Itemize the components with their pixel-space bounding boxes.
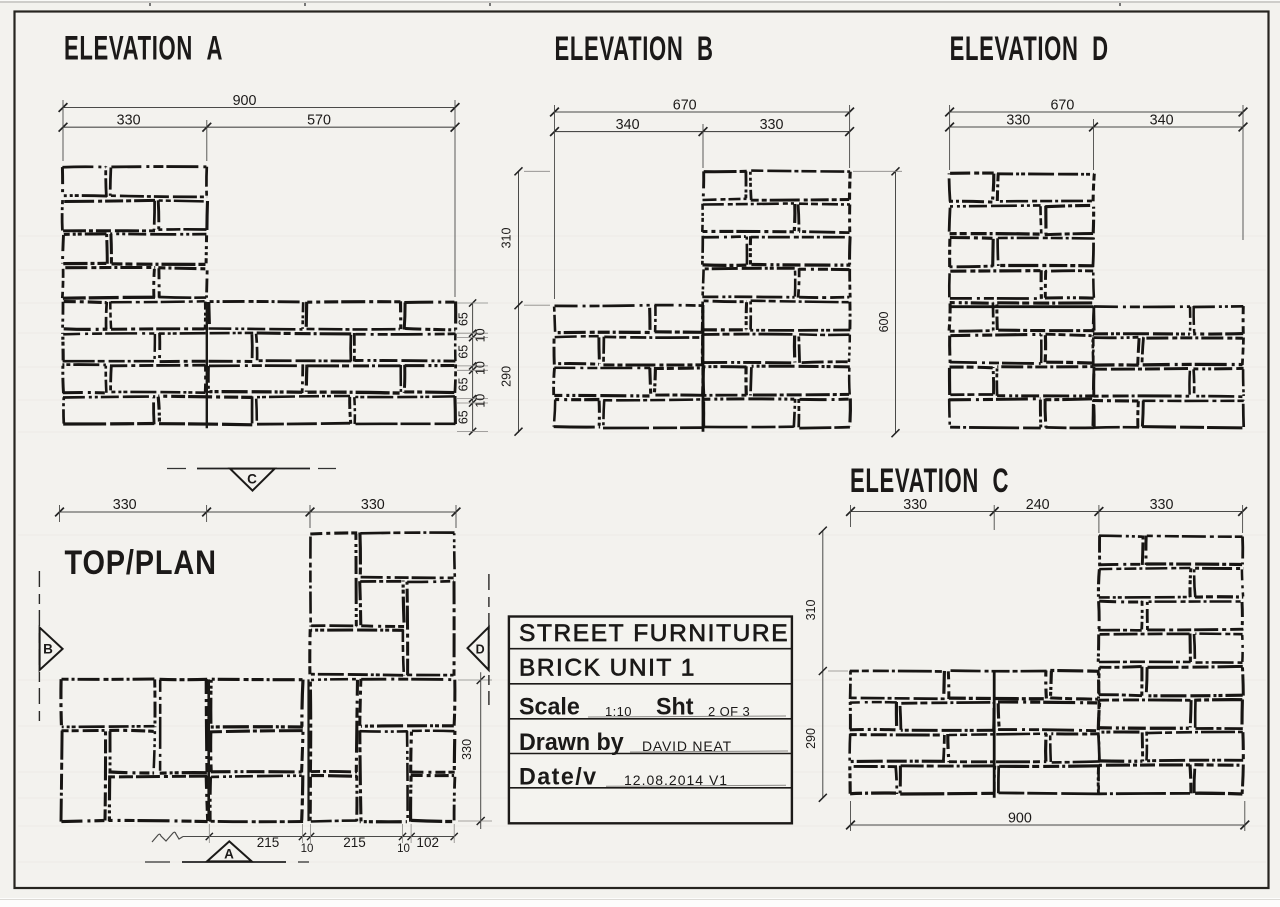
svg-text:240: 240 bbox=[1026, 497, 1050, 513]
svg-text:330: 330 bbox=[117, 113, 141, 129]
svg-text:65: 65 bbox=[457, 345, 471, 359]
svg-text:670: 670 bbox=[1050, 98, 1074, 114]
svg-text:Date/v: Date/v bbox=[519, 764, 598, 790]
svg-text:10: 10 bbox=[474, 394, 488, 408]
svg-text:600: 600 bbox=[877, 312, 891, 333]
svg-text:C: C bbox=[247, 472, 257, 487]
svg-text:290: 290 bbox=[500, 366, 514, 387]
svg-text:ELEVATION C: ELEVATION C bbox=[850, 462, 1009, 500]
svg-text:570: 570 bbox=[307, 113, 331, 129]
svg-text:10: 10 bbox=[397, 843, 410, 855]
svg-text:102: 102 bbox=[416, 835, 439, 850]
svg-text:STREET FURNITURE: STREET FURNITURE bbox=[519, 620, 789, 647]
svg-text:340: 340 bbox=[1150, 113, 1174, 129]
svg-text:10: 10 bbox=[474, 328, 488, 342]
svg-text:Scale: Scale bbox=[519, 694, 580, 720]
svg-text:10: 10 bbox=[474, 361, 488, 375]
svg-text:330: 330 bbox=[460, 739, 474, 760]
svg-text:330: 330 bbox=[1006, 113, 1030, 129]
svg-text:215: 215 bbox=[257, 835, 280, 850]
svg-text:330: 330 bbox=[903, 497, 927, 513]
svg-text:65: 65 bbox=[457, 312, 471, 326]
svg-text:900: 900 bbox=[233, 93, 257, 109]
svg-text:ELEVATION B: ELEVATION B bbox=[555, 30, 714, 68]
svg-text:330: 330 bbox=[760, 117, 784, 133]
svg-text:ELEVATION D: ELEVATION D bbox=[950, 30, 1109, 68]
svg-text:TOP/PLAN: TOP/PLAN bbox=[65, 543, 217, 582]
svg-text:B: B bbox=[43, 642, 53, 657]
svg-text:340: 340 bbox=[616, 117, 640, 133]
svg-text:ELEVATION A: ELEVATION A bbox=[64, 30, 223, 68]
svg-text:330: 330 bbox=[361, 497, 385, 513]
svg-text:BRICK UNIT 1: BRICK UNIT 1 bbox=[519, 655, 696, 682]
svg-text:Drawn by: Drawn by bbox=[519, 730, 625, 756]
svg-text:290: 290 bbox=[804, 728, 818, 749]
svg-text:670: 670 bbox=[673, 98, 697, 114]
svg-text:310: 310 bbox=[804, 600, 818, 621]
svg-text:900: 900 bbox=[1008, 811, 1032, 827]
svg-text:10: 10 bbox=[301, 843, 314, 855]
svg-text:65: 65 bbox=[457, 410, 471, 424]
svg-text:65: 65 bbox=[457, 377, 471, 391]
svg-text:330: 330 bbox=[1150, 497, 1174, 513]
svg-text:310: 310 bbox=[500, 228, 514, 249]
svg-text:D: D bbox=[476, 643, 485, 657]
svg-text:A: A bbox=[224, 847, 234, 862]
svg-text:330: 330 bbox=[113, 497, 137, 513]
svg-text:215: 215 bbox=[343, 835, 366, 850]
